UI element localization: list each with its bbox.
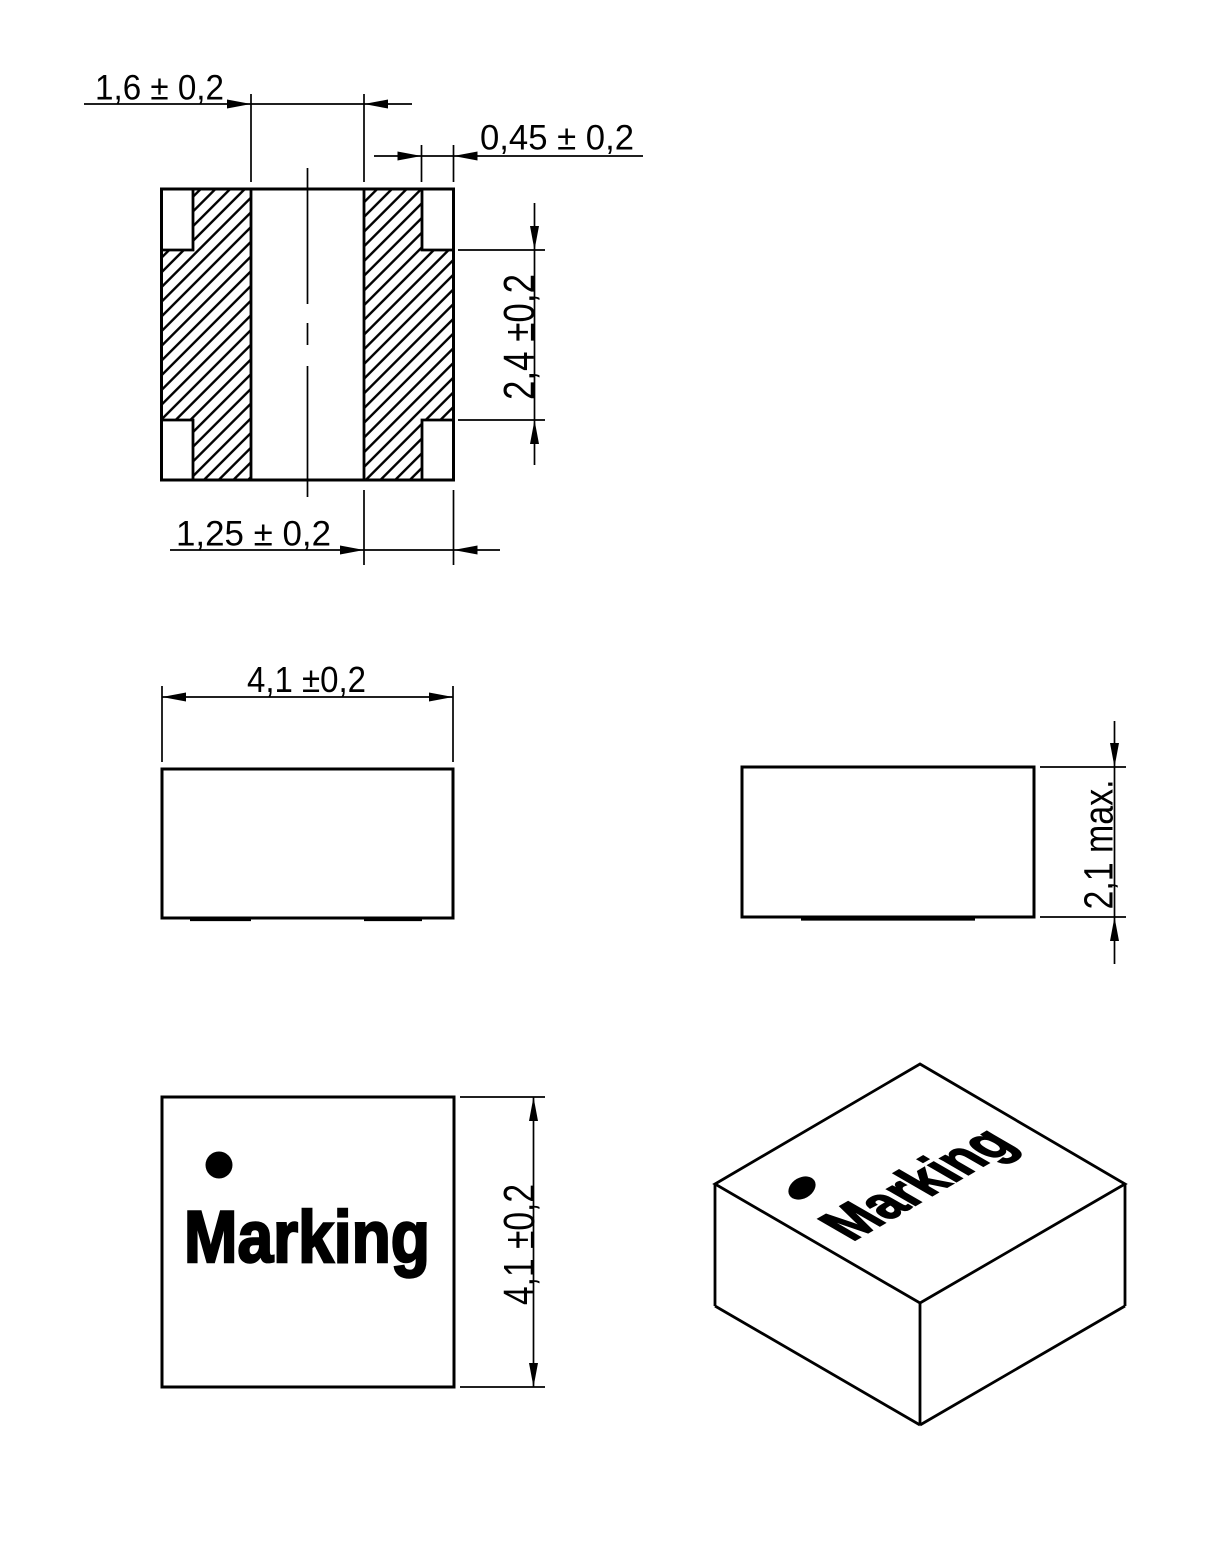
svg-text:4,1 ±0,2: 4,1 ±0,2 <box>247 659 366 700</box>
svg-text:0,45 ± 0,2: 0,45 ± 0,2 <box>480 119 634 158</box>
svg-text:1,6 ± 0,2: 1,6 ± 0,2 <box>95 69 224 108</box>
svg-text:4,1 ±0,2: 4,1 ±0,2 <box>495 1184 544 1305</box>
svg-text:2,1 max.: 2,1 max. <box>1076 780 1122 910</box>
svg-text:2,4 ±0,2: 2,4 ±0,2 <box>495 274 544 400</box>
svg-text:Marking: Marking <box>184 1195 430 1278</box>
svg-text:1,25 ± 0,2: 1,25 ± 0,2 <box>176 515 331 554</box>
